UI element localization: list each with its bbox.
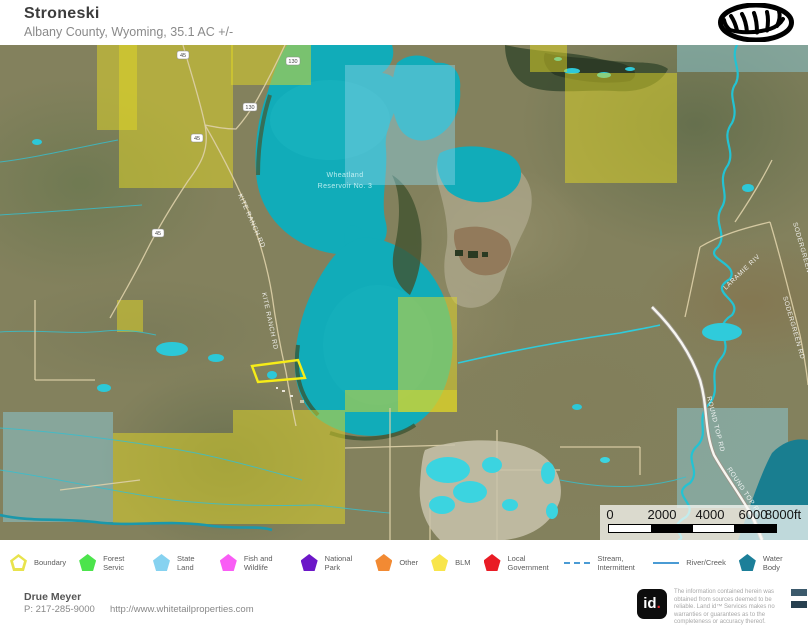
land-id-logo: id.	[637, 589, 667, 619]
local-government-swatch-icon	[484, 554, 501, 571]
website-link[interactable]: http://www.whitetailproperties.com	[110, 604, 254, 615]
scale-tick-last: 8000ft	[765, 507, 801, 522]
legend-label-local-government: Local Government	[508, 554, 552, 572]
redacted-chip-1	[791, 589, 807, 596]
water-body-label-2: Reservoir No. 3	[318, 183, 373, 190]
scale-tick: 6000	[739, 507, 768, 522]
scale-tick: 0	[606, 507, 613, 522]
road-label-sodergreen: SODERGREEN RD	[791, 222, 808, 287]
boundary-swatch-icon	[10, 554, 27, 571]
scale-tick: 2000	[648, 507, 677, 522]
agent-name: Drue Meyer	[24, 591, 81, 603]
legend-label-national-park: National Park	[325, 554, 363, 572]
national-park-swatch-icon	[301, 554, 318, 571]
scale-bar: 02000400060008000ft	[600, 505, 808, 540]
legend-item-state-land: State Land	[153, 554, 207, 572]
blm-swatch-icon	[431, 554, 448, 571]
legend-item-national-park: National Park	[301, 554, 363, 572]
legend-label-other: Other	[399, 558, 418, 567]
river-label-laramie: LARAMIE RIV	[723, 253, 762, 291]
legend-label-fish-and-wildlife: Fish and Wildlife	[244, 554, 288, 572]
river-creek-swatch-icon	[653, 562, 679, 564]
page-subtitle: Albany County, Wyoming, 35.1 AC +/-	[24, 25, 233, 39]
footer: Drue Meyer P: 217-285-9000 http://www.wh…	[0, 585, 808, 625]
redacted-chip-2	[791, 601, 807, 608]
legend-item-water-body: Water Body	[739, 554, 795, 572]
stream-intermittent-swatch-icon	[564, 562, 590, 564]
shield-county-3: 45	[155, 231, 161, 237]
shield-county-2: 45	[194, 136, 200, 142]
other-swatch-icon	[375, 554, 392, 571]
state-land-swatch-icon	[153, 554, 170, 571]
antler-logo-icon	[717, 3, 795, 42]
legend-label-boundary: Boundary	[34, 558, 66, 567]
legend-label-stream-intermittent: Stream, Intermittent	[597, 554, 640, 572]
legend-item-local-government: Local Government	[484, 554, 552, 572]
fish-and-wildlife-swatch-icon	[220, 554, 237, 571]
road-label-sodergreen-2: SODERGREEN RD	[781, 296, 806, 361]
disclaimer-text: The information contained herein was obt…	[674, 589, 792, 627]
legend-item-boundary: Boundary	[10, 554, 66, 571]
legend-label-water-body: Water Body	[763, 554, 795, 572]
shield-hwy-top: 130	[288, 59, 297, 65]
water-body-label: Wheatland	[326, 172, 363, 179]
legend-label-river-creek: River/Creek	[686, 558, 726, 567]
scale-ticks: 02000400060008000ft	[600, 505, 808, 523]
map-canvas[interactable]: Wheatland Reservoir No. 3 KITE RANCH RD …	[0, 45, 808, 540]
legend-item-other: Other	[375, 554, 418, 571]
water-body-swatch-icon	[739, 554, 756, 571]
legend: BoundaryForest ServicState LandFish and …	[0, 540, 808, 585]
legend-item-river-creek: River/Creek	[653, 558, 726, 567]
scale-tick: 4000	[696, 507, 725, 522]
forest-servic-swatch-icon	[79, 554, 96, 571]
legend-item-forest-servic: Forest Servic	[79, 554, 140, 572]
header: Stroneski Albany County, Wyoming, 35.1 A…	[0, 0, 808, 45]
legend-item-blm: BLM	[431, 554, 470, 571]
page-title: Stroneski	[24, 5, 100, 23]
legend-item-stream-intermittent: Stream, Intermittent	[564, 554, 640, 572]
legend-label-blm: BLM	[455, 558, 470, 567]
agent-phone: P: 217-285-9000	[24, 604, 95, 615]
shield-county-1: 45	[180, 53, 186, 59]
canal	[458, 325, 660, 363]
legend-label-forest-servic: Forest Servic	[103, 554, 140, 572]
shield-hwy-mid: 130	[245, 105, 254, 111]
scale-bar-segments	[608, 524, 777, 533]
legend-label-state-land: State Land	[177, 554, 207, 572]
legend-item-fish-and-wildlife: Fish and Wildlife	[220, 554, 288, 572]
alkali-flats	[420, 440, 561, 540]
road-label-kite-ranch: KITE RANCH RD	[236, 193, 266, 249]
